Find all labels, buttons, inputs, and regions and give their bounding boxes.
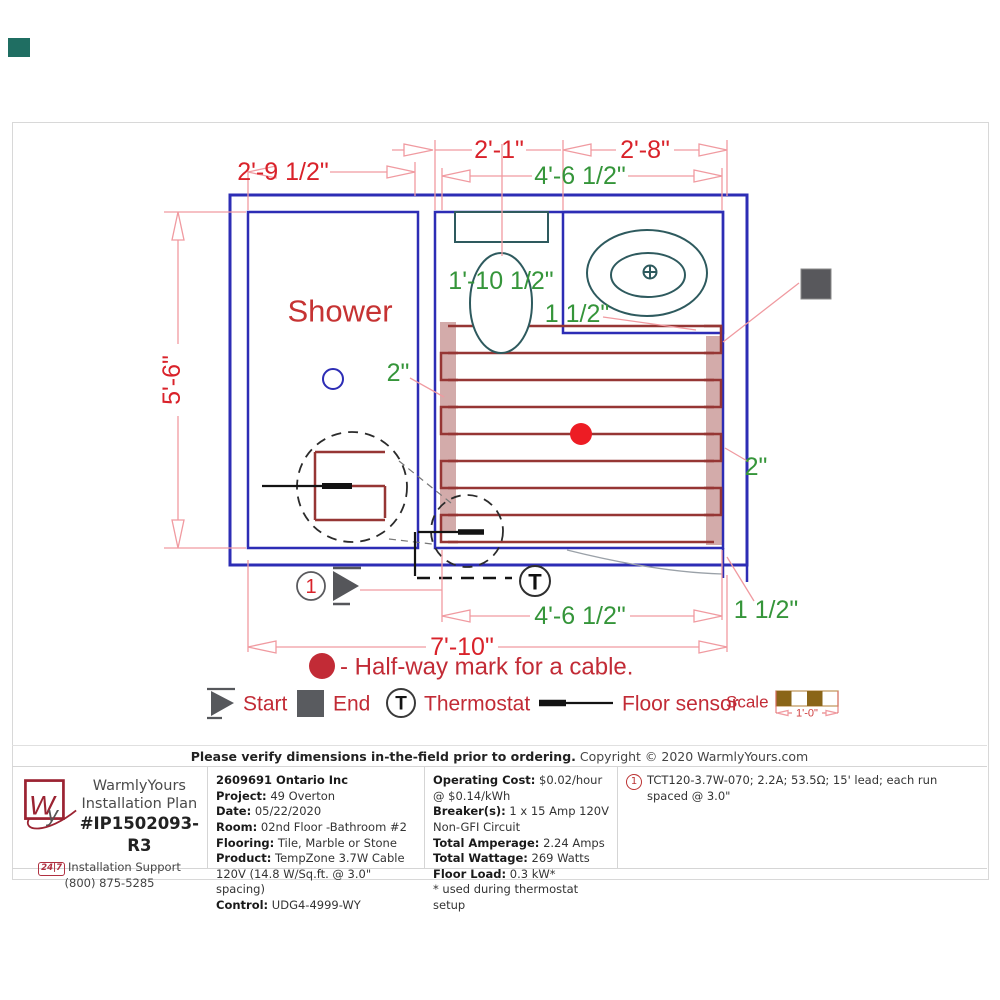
heating-mat <box>440 322 722 545</box>
dim-mat-width-bottom: 4'-6 1/2" <box>534 602 625 630</box>
scale-arrow-right <box>826 711 837 716</box>
verify-notice-bold: Please verify dimensions in-the-field pr… <box>191 749 576 764</box>
start-marker-icon <box>333 571 359 601</box>
corner-badge <box>8 38 30 57</box>
project-row: Date: 05/22/2020 <box>216 804 416 820</box>
brand-subtitle: Installation Plan <box>80 795 199 813</box>
electrical-footnote: * used during thermostat setup <box>433 882 609 913</box>
scale-bar-cell-1 <box>776 691 792 706</box>
project-row: Room: 02nd Floor -Bathroom #2 <box>216 820 416 836</box>
brand-cell: W y WarmlyYours Installation Plan #IP150… <box>12 767 208 868</box>
door-swing-arc <box>567 550 722 574</box>
product-note-number-icon: 1 <box>626 774 642 790</box>
dim-toilet-offset: 1'-10 1/2" <box>448 267 553 295</box>
brand-name: WarmlyYours <box>80 777 199 795</box>
halfway-legend-dot <box>309 653 335 679</box>
sensor-detail <box>262 432 512 578</box>
circuit-number: 1 <box>305 576 316 598</box>
support-text: Installation Support (800) 875-5285 <box>65 860 181 890</box>
dim-vanity-width: 2'-8" <box>620 136 670 164</box>
copyright-text: Copyright © 2020 WarmlyYours.com <box>580 749 808 764</box>
dim-room-height: 5'-6" <box>158 355 186 405</box>
dim-counter-gap: 1 1/2" <box>545 300 609 328</box>
support-line: 24|7Installation Support (800) 875-5285 <box>25 860 195 891</box>
halfway-legend-label: - Half-way mark for a cable. <box>340 654 633 681</box>
project-info-cell: 2609691 Ontario Inc Project: 49 Overton … <box>208 767 425 868</box>
title-block: W y WarmlyYours Installation Plan #IP150… <box>12 766 987 869</box>
dim-door-gap: 1 1/2" <box>734 596 798 624</box>
shower-drain-icon <box>323 369 343 389</box>
verify-notice: Please verify dimensions in-the-field pr… <box>12 745 987 767</box>
project-row: Project: 49 Overton <box>216 789 416 805</box>
scale-label: Scale <box>726 693 769 712</box>
start-legend-icon <box>211 691 234 716</box>
end-legend-icon <box>297 690 324 717</box>
floor-plan-drawing: Shower <box>12 122 987 745</box>
electrical-row: Floor Load: 0.3 kW* <box>433 867 609 883</box>
dim-shower-width: 2'-9 1/2" <box>237 158 328 186</box>
project-company: 2609691 Ontario Inc <box>216 773 348 787</box>
electrical-row: Breaker(s): 1 x 15 Amp 120V Non-GFI Circ… <box>433 804 609 835</box>
dim-left-gap: 2" <box>387 359 410 387</box>
scale-arrow-left <box>777 711 788 716</box>
plan-number: #IP1502093-R3 <box>80 813 199 856</box>
floor-sensor-legend-label: Floor sensor <box>622 693 739 716</box>
thermostat-marker-letter: T <box>528 570 542 595</box>
mat-right-turn-band <box>706 336 722 545</box>
thermostat-legend-letter: T <box>395 694 407 715</box>
electrical-info-cell: Operating Cost: $0.02/hour @ $0.14/kWh B… <box>425 767 618 868</box>
electrical-row: Total Wattage: 269 Watts <box>433 851 609 867</box>
legend: - Half-way mark for a cable. Start End T… <box>207 653 838 720</box>
scale-bar-cell-2 <box>807 691 823 706</box>
end-legend-label: End <box>333 693 370 716</box>
dim-toilet-width: 2'-1" <box>474 136 524 164</box>
electrical-row: Operating Cost: $0.02/hour @ $0.14/kWh <box>433 773 609 804</box>
support-247-badge: 24|7 <box>38 862 65 876</box>
project-row: Control: UDG4-4999-WY <box>216 898 416 914</box>
scale-value: 1'-0" <box>796 708 818 720</box>
installation-plan-page: Shower <box>0 0 1000 1000</box>
product-note-cell: 1 TCT120-3.7W-070; 2.2A; 53.5Ω; 15' lead… <box>618 767 987 868</box>
project-row: Product: TempZone 3.7W Cable 120V (14.8 … <box>216 851 416 898</box>
dim-mat-width-top: 4'-6 1/2" <box>534 162 625 190</box>
thermostat-legend-label: Thermostat <box>424 693 530 716</box>
electrical-row: Total Amperage: 2.24 Amps <box>433 836 609 852</box>
end-marker <box>801 269 831 299</box>
sensor-wire <box>415 532 458 576</box>
project-row: Flooring: Tile, Marble or Stone <box>216 836 416 852</box>
start-legend-label: Start <box>243 693 288 716</box>
halfway-mark-dot <box>570 423 592 445</box>
product-note-text: TCT120-3.7W-070; 2.2A; 53.5Ω; 15' lead; … <box>647 773 979 804</box>
dim-right-gap: 2" <box>745 453 768 481</box>
warmlyyours-logo: W y <box>20 773 80 837</box>
shower-label: Shower <box>287 294 392 329</box>
